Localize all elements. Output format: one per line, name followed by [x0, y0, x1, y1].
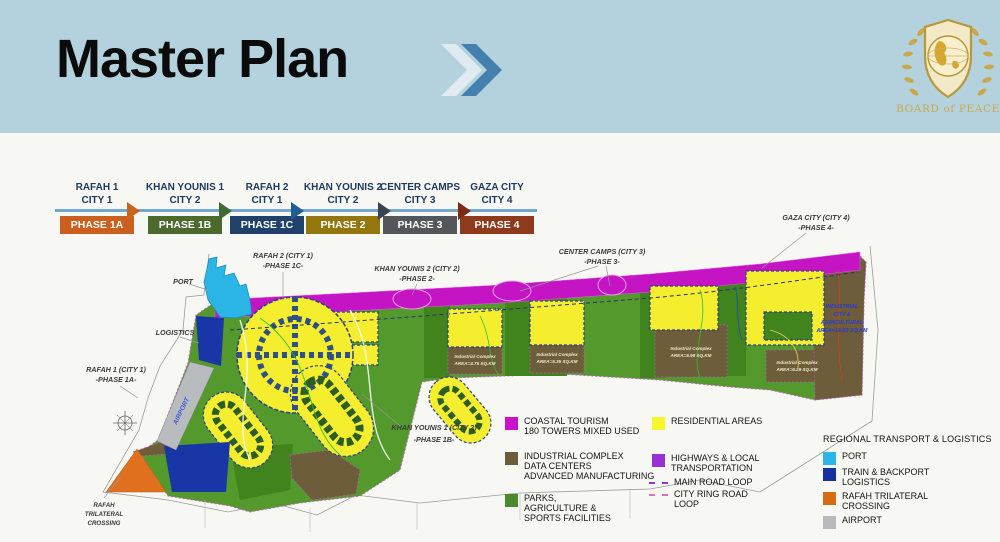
industrial-site2: Industrial Complex [536, 352, 578, 357]
map-label-khanyounis2: KHAN YOUNIS 2 (CITY 2) [374, 264, 460, 273]
legend-transport: REGIONAL TRANSPORT & LOGISTICS PORT TRAI… [823, 434, 998, 534]
map-residential-inner-park [764, 312, 812, 340]
coastal-swatch [505, 417, 518, 430]
legend-text: AIRPORT [842, 516, 882, 526]
legend-text: SPORTS FACILITIES [524, 514, 611, 524]
industrial-site1-area: AREA=4.75 SQ.KM [454, 361, 496, 366]
legend-transport-title: REGIONAL TRANSPORT & LOGISTICS [823, 434, 992, 444]
map-label-rafah2: RAFAH 2 (CITY 1) [253, 251, 313, 260]
main-road-dash-swatch [649, 482, 668, 484]
highways-swatch [652, 454, 665, 467]
legend-item-coastal: COASTAL TOURISM 180 TOWERS MIXED USED [505, 417, 639, 437]
legend-item-industrial: INDUSTRIAL COMPLEX DATA CENTERS ADVANCED… [505, 452, 654, 482]
legend-item-highways: HIGHWAYS & LOCAL TRANSPORTATION [652, 454, 760, 474]
map-label-gazacity: GAZA CITY (CITY 4) [782, 213, 850, 222]
legend-text: LOGISTICS [842, 478, 929, 488]
industrial-swatch [505, 452, 518, 465]
residential-swatch [652, 417, 665, 430]
legend-text: LOOP [674, 500, 748, 510]
ring-road-dash-swatch [649, 494, 668, 496]
map-label-crossing: RAFAH [93, 502, 115, 509]
industrial-city-label2: CITY & [833, 312, 851, 318]
legend-text: TRANSPORTATION [671, 464, 760, 474]
train-swatch [823, 468, 836, 481]
industrial-site1: Industrial Complex [454, 354, 496, 359]
legend-item-port: PORT [823, 452, 867, 465]
map-label-centercamps-phase: -PHASE 3- [584, 257, 620, 266]
map-label-khanyounis1-phase: -PHASE 1B- [414, 435, 455, 444]
map-label-gazacity-phase: -PHASE 4- [798, 223, 834, 232]
legend-text: CROSSING [842, 502, 928, 512]
map-label-crossing2: TRILATERAL [85, 511, 124, 518]
legend-text: MAIN ROAD LOOP [674, 478, 753, 488]
industrial-site3-area: AREA=6.98 SQ.KM [670, 353, 712, 358]
crossing-swatch [823, 492, 836, 505]
legend-item-airport: AIRPORT [823, 516, 882, 529]
industrial-site4-area: AREA=6.29 SQ.KM [776, 367, 818, 372]
compass-icon [113, 411, 137, 435]
map-label-rafah2-phase: -PHASE 1C- [263, 261, 304, 270]
industrial-site4: Industrial Complex [776, 360, 818, 365]
legend-text: ADVANCED MANUFACTURING [524, 472, 654, 482]
legend-item-residential: RESIDENTIAL AREAS [652, 417, 762, 430]
legend-text: 180 TOWERS MIXED USED [524, 427, 639, 437]
map-label-port: PORT [173, 277, 193, 286]
slide: Master Plan [0, 0, 1000, 542]
industrial-city-label: INDUSTRIAL [826, 304, 859, 310]
legend-planning: COASTAL TOURISM 180 TOWERS MIXED USED IN… [505, 414, 815, 534]
legend-item-ring-road-loop: CITY RING ROAD LOOP [649, 490, 748, 510]
map-label-khanyounis1: KHAN YOUNIS 1 (CITY 2) [391, 423, 477, 432]
legend-item-main-road-loop: MAIN ROAD LOOP [649, 478, 753, 488]
map-label-centercamps: CENTER CAMPS (CITY 3) [559, 247, 646, 256]
map-label-logistics: LOGISTICS [156, 328, 195, 337]
map-label-crossing3: CROSSING [87, 520, 120, 527]
legend-item-parks: PARKS, AGRICULTURE & SPORTS FACILITIES [505, 494, 611, 524]
map-label-rafah1-phase: -PHASE 1A- [96, 375, 137, 384]
parks-swatch [505, 494, 518, 507]
industrial-city-label3: AGRICULTURAL [820, 320, 863, 326]
airport-swatch [823, 516, 836, 529]
legend-item-crossing: RAFAH TRILATERAL CROSSING [823, 492, 928, 512]
port-swatch [823, 452, 836, 465]
legend-text: RESIDENTIAL AREAS [671, 417, 762, 427]
legend-text: PORT [842, 452, 867, 462]
industrial-site3: Industrial Complex [670, 346, 712, 351]
legend-item-train: TRAIN & BACKPORT LOGISTICS [823, 468, 929, 488]
map-label-rafah1: RAFAH 1 (CITY 1) [86, 365, 146, 374]
industrial-city-label4: AREA=16.63 SQ.KM [815, 328, 868, 334]
industrial-site2-area: AREA=5.35 SQ.KM [536, 359, 578, 364]
map-label-khanyounis2-phase: -PHASE 2- [399, 274, 435, 283]
